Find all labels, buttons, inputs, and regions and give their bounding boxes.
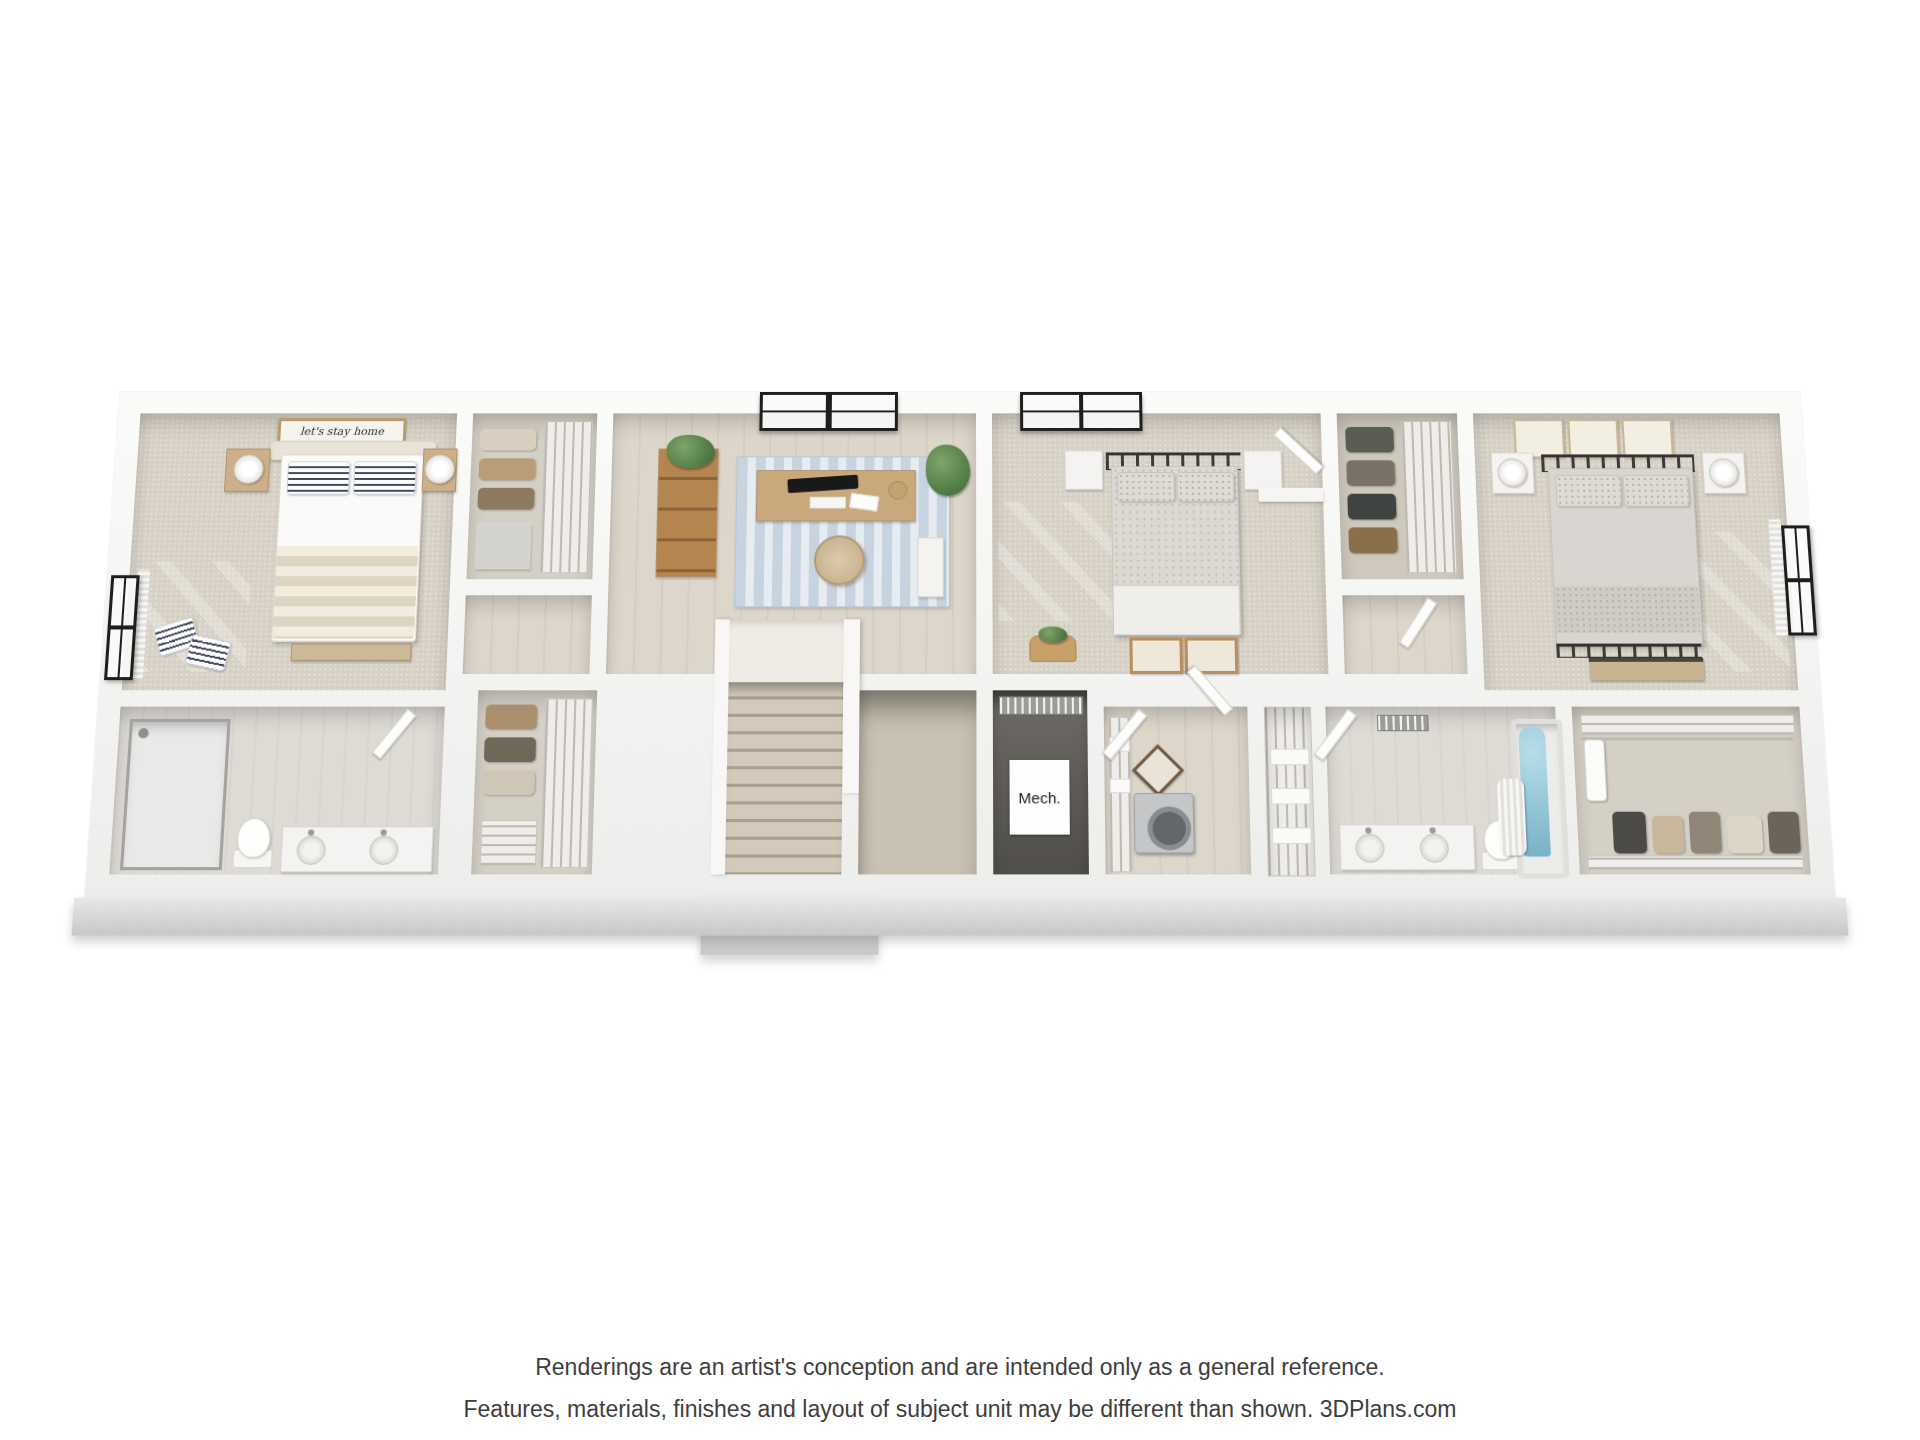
hall-left [463, 595, 592, 674]
sunlight-patch-bed2 [998, 502, 1121, 622]
bath2-ceiling-vent [1377, 715, 1429, 731]
closet4-hanging-rod [1581, 737, 1793, 740]
vanity2-faucet-left [1365, 827, 1371, 833]
towel-stack-1 [1270, 749, 1310, 765]
mechanical-closet: Mech. [993, 690, 1089, 874]
desk-keyboard [810, 497, 846, 509]
closet1-clothes-1 [480, 429, 537, 451]
bed3-lamp-left [1497, 458, 1527, 487]
closet-top-left [466, 413, 597, 579]
vanity2-sink-left [1355, 834, 1385, 863]
bedroom3-window [1781, 525, 1817, 635]
office-plant [926, 445, 970, 496]
bed1-pillow-left [286, 461, 350, 494]
washer [1134, 793, 1195, 853]
bed3-patterned-band [1554, 586, 1700, 632]
botanical-frame-3 [1621, 419, 1673, 458]
washer-door [1147, 807, 1191, 851]
bed2-closet-wall [1258, 488, 1323, 502]
office-window [759, 392, 898, 431]
closet3-clothes-2 [1346, 460, 1395, 486]
leaning-frame-1 [1129, 638, 1183, 674]
walk-in-closet-lower-left [471, 690, 597, 874]
vanity1-sink-right [369, 836, 399, 865]
towel-stack-3 [1272, 827, 1312, 844]
bed3-pillow-left [1555, 475, 1622, 507]
vanity2-counter [1339, 824, 1476, 870]
towel-stack-2 [1271, 788, 1311, 805]
closet4-item-4 [1726, 816, 1764, 854]
bed2-pillow-left [1117, 472, 1175, 502]
bed3 [1548, 468, 1704, 645]
closet4-item-1 [1612, 812, 1647, 854]
closet4-top-shelf [1580, 715, 1795, 735]
desk-monitor [787, 475, 858, 494]
closet1-dresser [475, 523, 531, 569]
bed-sign-text: let's stay home [300, 425, 385, 438]
closet1-clothes-3 [477, 488, 534, 510]
closet3-clothes-1 [1345, 427, 1394, 452]
mech-vent [999, 696, 1083, 714]
closet2-clothes-2 [484, 737, 536, 762]
bed1 [271, 454, 424, 641]
office-side-table [917, 537, 944, 597]
bed1-striped-duvet [272, 546, 418, 638]
mech-label-card: Mech. [1009, 760, 1069, 835]
disclaimer-line-1: Renderings are an artist's conception an… [0, 1346, 1920, 1388]
bed2-nightstand-right [1243, 451, 1282, 490]
office-desk [756, 470, 916, 521]
closet4-clothes-row [1612, 810, 1801, 854]
hall-bathroom [1325, 707, 1563, 875]
bed3-footboard [1556, 644, 1702, 658]
bed1-pillow-right [353, 461, 417, 494]
bed2-folded-blanket [1113, 584, 1239, 634]
stair-wall-right [842, 619, 860, 793]
staircase-steps [725, 682, 843, 874]
bedroom2-window [1020, 392, 1143, 431]
closet2-clothes-1 [485, 705, 537, 730]
closet3-garment-bag [1348, 527, 1397, 553]
closet4-item-2 [1652, 816, 1685, 854]
closet2-wire-shelving [540, 698, 593, 868]
mech-label: Mech. [1018, 788, 1060, 806]
stair-landing [729, 619, 844, 682]
linen-closet [1264, 707, 1316, 877]
bed1-foot-bench [290, 644, 411, 661]
vanity2-sink-right [1419, 834, 1449, 863]
bed2-pillow-right [1176, 472, 1234, 502]
disclaimer-line-2: Features, materials, finishes and layout… [0, 1388, 1920, 1430]
basket-greenery [1039, 626, 1068, 642]
botanical-frame-2 [1567, 419, 1619, 458]
vanity1-counter [280, 826, 434, 872]
closet3-clothes-3 [1347, 494, 1396, 520]
floorplan-3d: let's stay home [85, 392, 1836, 898]
closet4-bottom-shelf [1587, 856, 1804, 871]
walk-in-closet-right [1572, 707, 1811, 875]
bed3-console-bench [1589, 658, 1705, 680]
closet4-item-3 [1689, 812, 1723, 854]
desk-papers [849, 493, 879, 512]
wicker-basket [1029, 636, 1076, 662]
closet1-clothes-2 [479, 458, 536, 480]
closet3-wire-shelving [1401, 421, 1457, 573]
shower-curtain [1497, 779, 1527, 856]
desk-vase [888, 481, 907, 500]
vanity1-sink-left [296, 836, 327, 865]
garment-steamer [1583, 739, 1607, 801]
laundry-basket-2 [1110, 779, 1131, 793]
bed2 [1111, 466, 1242, 635]
bookshelf-plant [666, 435, 715, 468]
shower-head [138, 728, 149, 738]
disclaimer: Renderings are an artist's conception an… [0, 1346, 1920, 1430]
stairwell-void [858, 690, 977, 874]
office-chair [814, 535, 865, 585]
walk-in-closet-middle [1337, 413, 1464, 579]
bed3-pillow-right [1623, 475, 1690, 507]
closet4-item-5 [1767, 812, 1801, 854]
laundry-picture-frame [1132, 744, 1185, 797]
shower [120, 719, 231, 870]
foundation-slab [72, 898, 1849, 936]
vanity2-faucet-right [1429, 827, 1435, 833]
closet1-wire-shelving [540, 421, 593, 573]
closet2-clothes-3 [483, 770, 536, 795]
closet2-shoe-rack [480, 820, 538, 866]
bed2-nightstand-left [1065, 451, 1104, 490]
